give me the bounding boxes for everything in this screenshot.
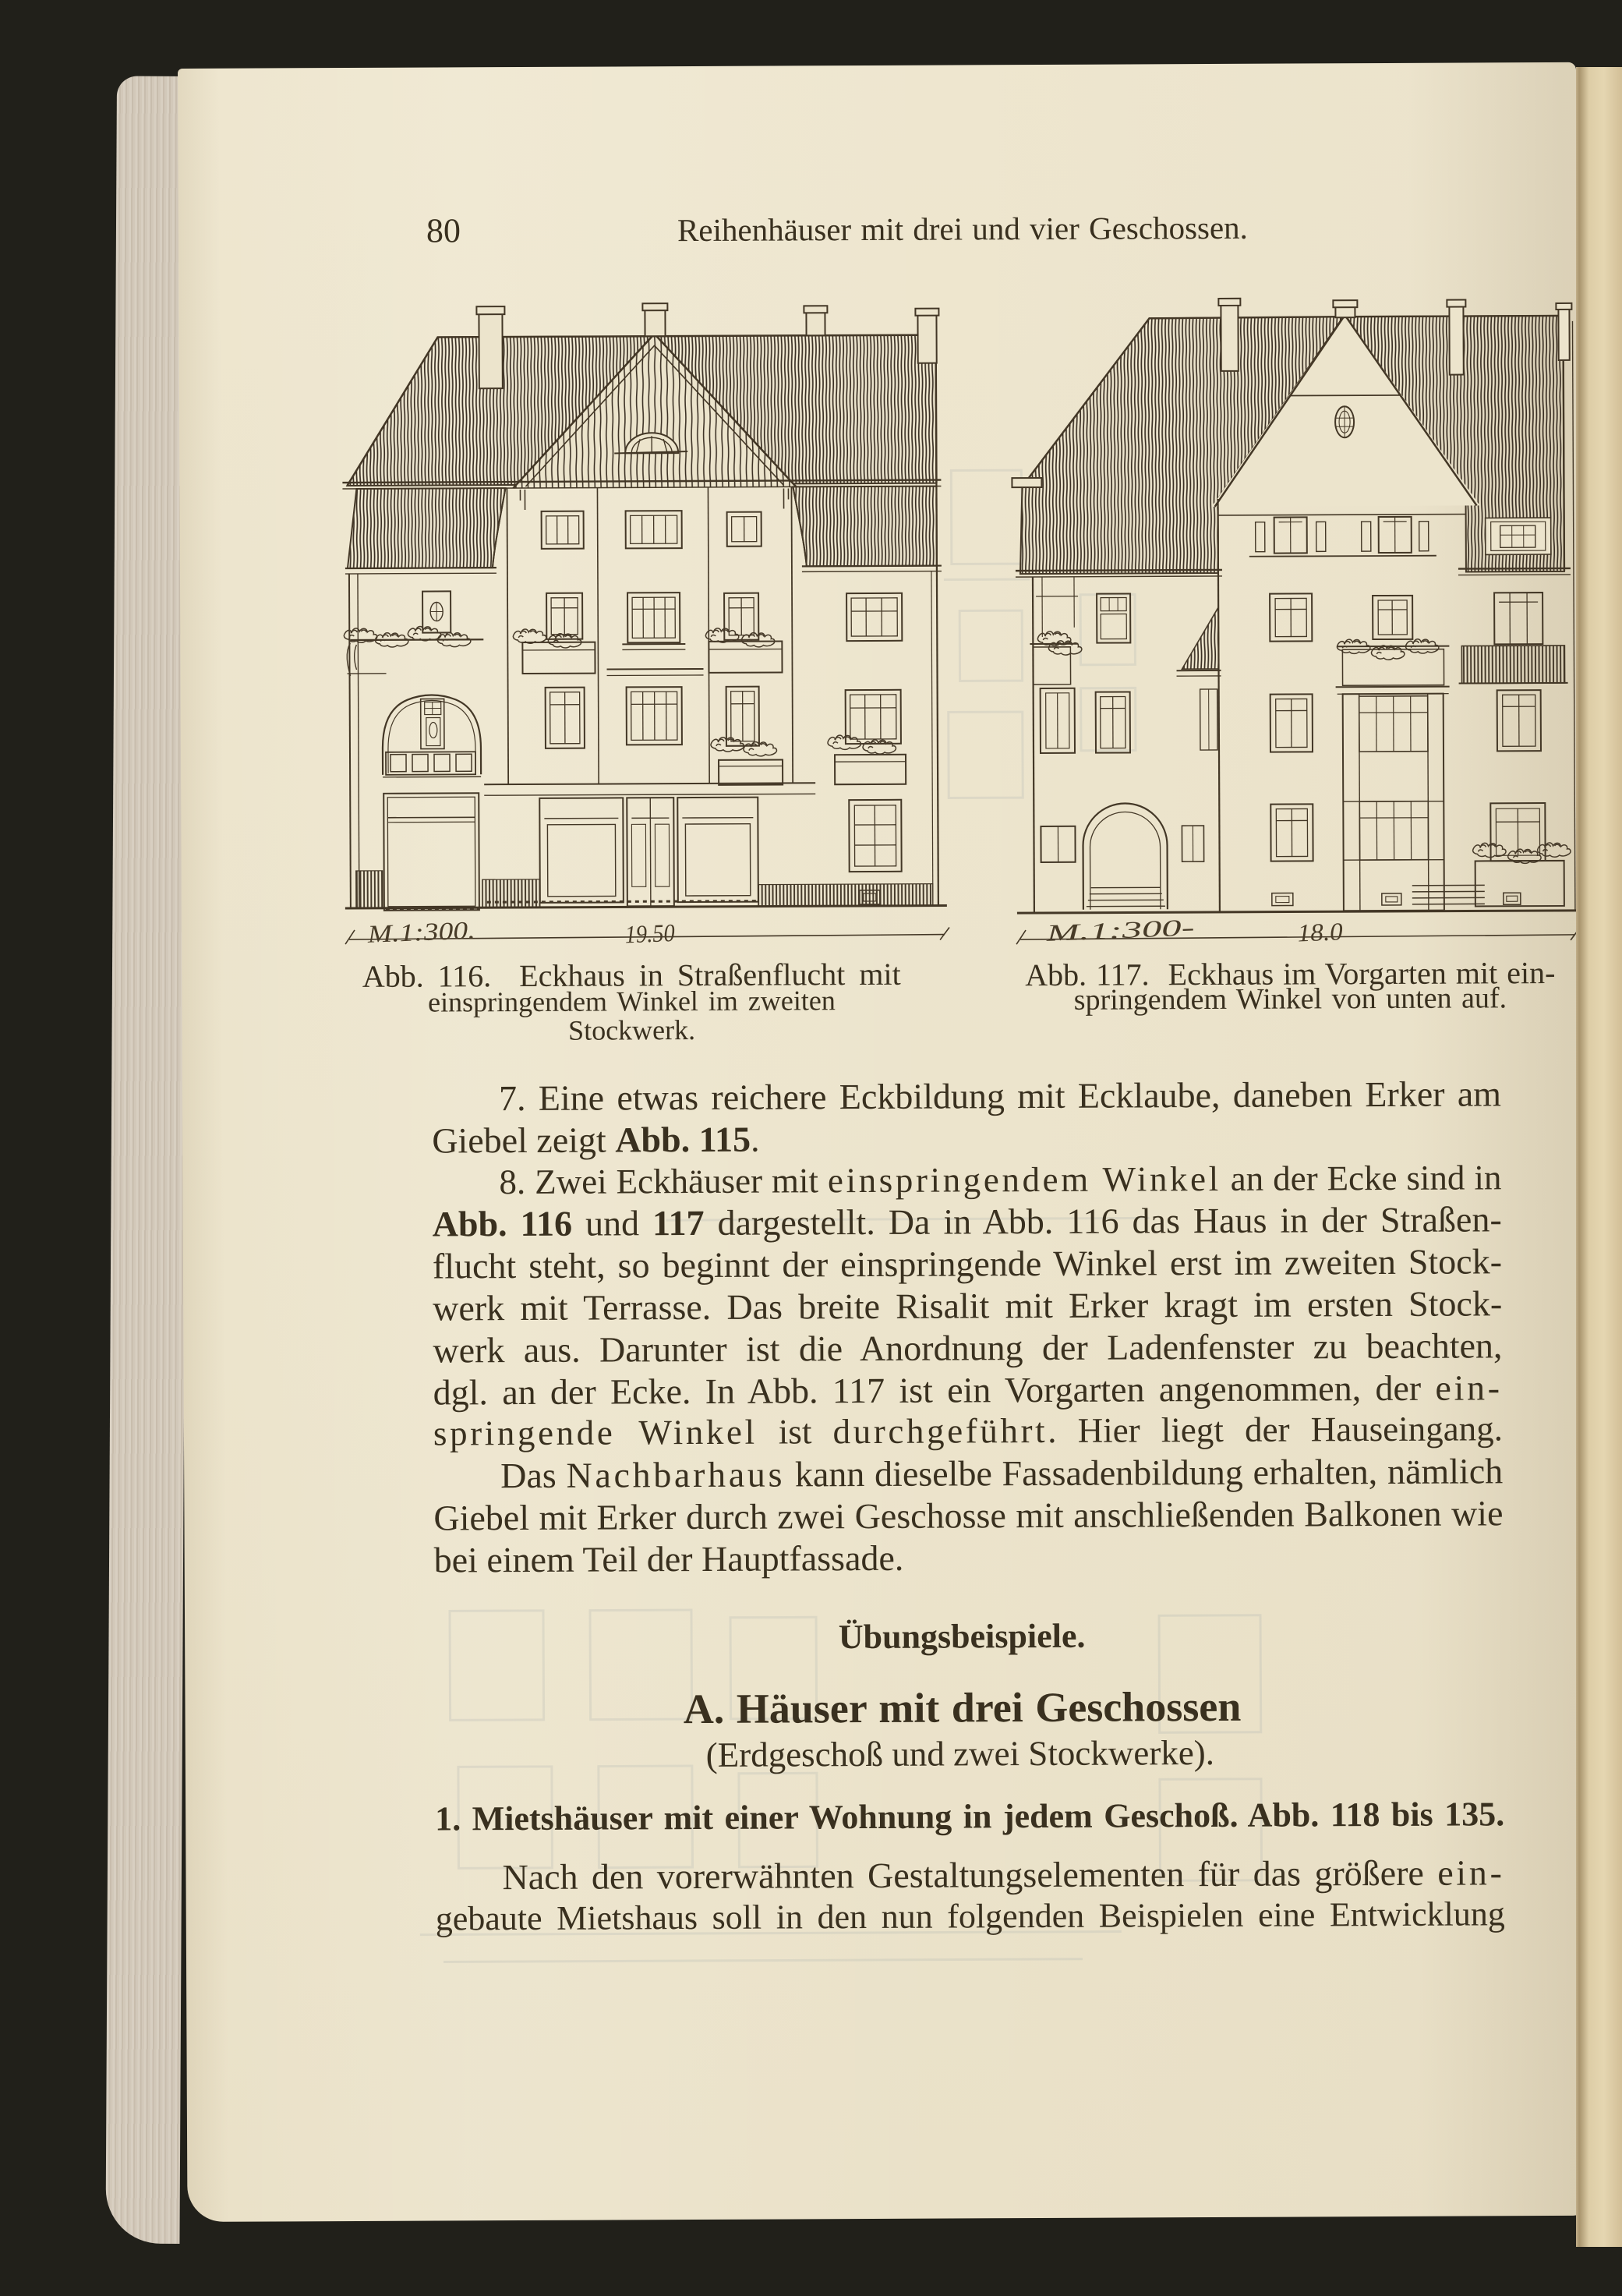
svg-text:18.0: 18.0 — [1297, 917, 1343, 946]
svg-text:M.1:300.: M.1:300. — [366, 915, 475, 947]
svg-text:19.50: 19.50 — [624, 918, 675, 948]
svg-text:M.1:300-: M.1:300- — [1044, 915, 1195, 946]
